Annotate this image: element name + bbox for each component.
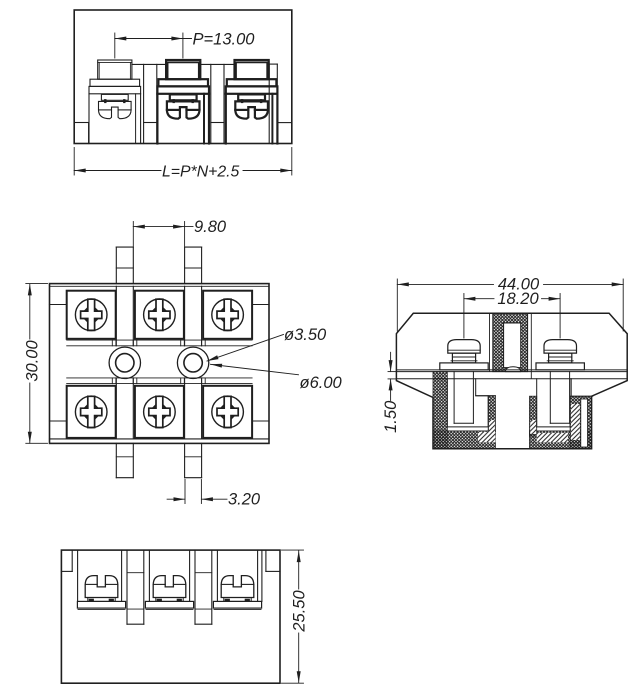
svg-text:ø3.50: ø3.50 (284, 326, 327, 344)
svg-text:L=P*N+2.5: L=P*N+2.5 (162, 164, 240, 181)
svg-text:1.50: 1.50 (382, 400, 400, 433)
svg-text:P=13.00: P=13.00 (193, 31, 256, 49)
svg-text:9.80: 9.80 (194, 218, 227, 236)
svg-text:18.20: 18.20 (497, 290, 539, 308)
svg-text:25.50: 25.50 (290, 590, 308, 633)
svg-text:ø6.00: ø6.00 (300, 374, 343, 392)
svg-text:3.20: 3.20 (228, 490, 261, 508)
svg-text:30.00: 30.00 (23, 340, 41, 382)
